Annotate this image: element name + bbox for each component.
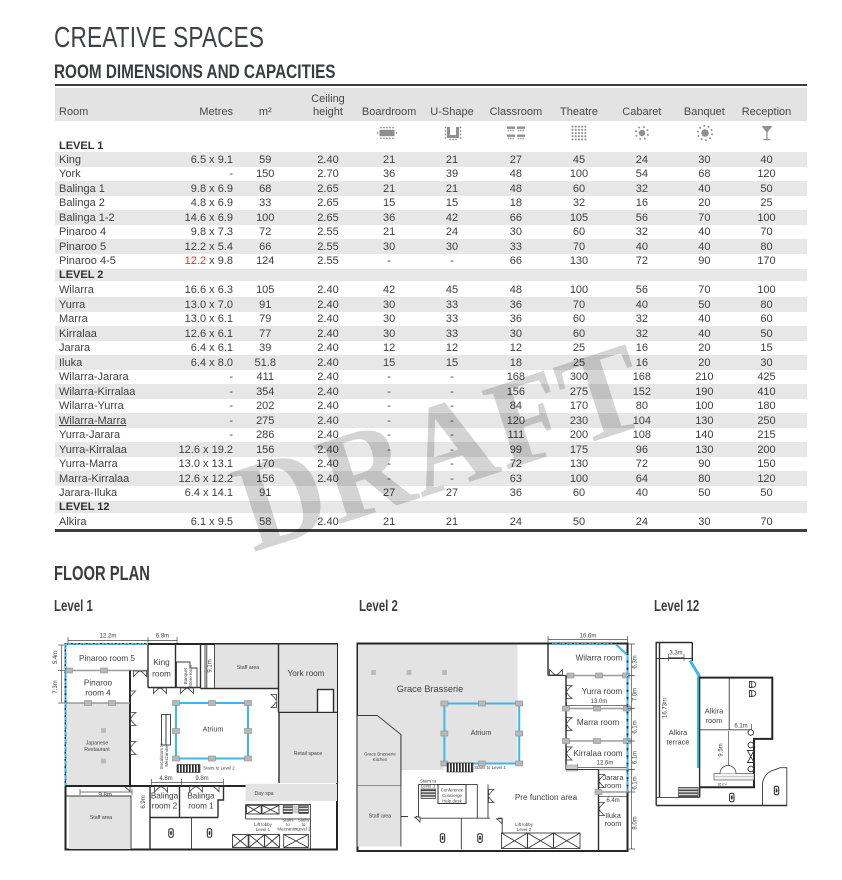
svg-text:Kirralaa room: Kirralaa room bbox=[573, 749, 622, 758]
svg-text:Japanese: Japanese bbox=[86, 741, 109, 747]
svg-text:Balinga: Balinga bbox=[187, 792, 215, 801]
svg-text:Staff area: Staff area bbox=[90, 815, 113, 821]
svg-text:Restaurant: Restaurant bbox=[84, 747, 110, 753]
svg-text:Alkira: Alkira bbox=[669, 728, 688, 737]
svg-text:6.1m: 6.1m bbox=[734, 724, 747, 730]
svg-text:Help desk: Help desk bbox=[442, 798, 462, 803]
svg-text:Pre function area: Pre function area bbox=[515, 793, 578, 802]
svg-text:room: room bbox=[605, 819, 622, 828]
svg-text:3.3m: 3.3m bbox=[669, 651, 682, 657]
svg-text:Pinaroo: Pinaroo bbox=[84, 679, 113, 688]
svg-text:Grace Brasserie: Grace Brasserie bbox=[397, 684, 463, 694]
svg-text:6.1m: 6.1m bbox=[633, 776, 639, 789]
svg-text:9.5m: 9.5m bbox=[719, 743, 725, 756]
svg-text:Mezzanine: Mezzanine bbox=[164, 745, 169, 767]
svg-text:13.0m: 13.0m bbox=[591, 699, 608, 705]
svg-text:Kitchen: Kitchen bbox=[373, 757, 388, 762]
svg-text:9.8m: 9.8m bbox=[195, 776, 208, 782]
svg-text:Grace Brasserie: Grace Brasserie bbox=[364, 752, 396, 757]
svg-text:8.0m: 8.0m bbox=[633, 816, 639, 829]
svg-text:Atrium: Atrium bbox=[471, 728, 492, 737]
svg-text:7.3m: 7.3m bbox=[53, 680, 59, 693]
svg-text:King: King bbox=[153, 658, 170, 667]
svg-text:Yurra room: Yurra room bbox=[582, 687, 623, 696]
svg-text:York room: York room bbox=[287, 669, 324, 678]
svg-text:9.1m: 9.1m bbox=[208, 659, 214, 672]
svg-text:Level 2: Level 2 bbox=[296, 827, 311, 832]
svg-text:12.6m: 12.6m bbox=[597, 761, 614, 767]
svg-text:Stairs to Level 1: Stairs to Level 1 bbox=[474, 765, 506, 770]
svg-text:4.8m: 4.8m bbox=[159, 776, 172, 782]
svg-text:Day spa: Day spa bbox=[254, 791, 273, 797]
svg-text:Store room: Store room bbox=[188, 665, 193, 687]
svg-text:6.4m: 6.4m bbox=[606, 798, 619, 804]
svg-text:room 2: room 2 bbox=[152, 802, 178, 811]
svg-text:Wilarra room: Wilarra room bbox=[576, 654, 623, 663]
svg-text:Retail space: Retail space bbox=[294, 751, 323, 757]
svg-text:6.1m: 6.1m bbox=[633, 720, 639, 733]
svg-text:16.6m: 16.6m bbox=[580, 634, 597, 640]
svg-text:room: room bbox=[152, 670, 171, 679]
svg-text:Staff area: Staff area bbox=[237, 665, 260, 671]
svg-text:Atrium: Atrium bbox=[203, 725, 224, 734]
svg-text:Staff area: Staff area bbox=[369, 814, 392, 820]
svg-text:room: room bbox=[706, 716, 723, 725]
svg-text:6.3m: 6.3m bbox=[633, 655, 639, 668]
svg-text:Conference: Conference bbox=[441, 788, 464, 793]
svg-text:Marra room: Marra room bbox=[577, 718, 619, 727]
svg-text:Concierge: Concierge bbox=[442, 793, 463, 798]
svg-text:16.73m: 16.73m bbox=[663, 698, 669, 718]
svg-text:5.4m: 5.4m bbox=[53, 651, 59, 664]
svg-text:room: room bbox=[605, 781, 622, 790]
svg-text:Alkira: Alkira bbox=[705, 707, 724, 716]
svg-text:Level 2: Level 2 bbox=[517, 827, 532, 832]
svg-text:Pinaroo room 5: Pinaroo room 5 bbox=[79, 654, 135, 663]
svg-text:6.1m: 6.1m bbox=[633, 751, 639, 764]
svg-text:Level 1: Level 1 bbox=[256, 827, 271, 832]
svg-text:16 m²: 16 m² bbox=[717, 783, 727, 787]
svg-text:room 4: room 4 bbox=[85, 689, 111, 698]
svg-text:Stairs to Level 2: Stairs to Level 2 bbox=[203, 766, 235, 771]
svg-text:12.2m: 12.2m bbox=[100, 634, 117, 640]
svg-text:7.0m: 7.0m bbox=[633, 688, 639, 701]
svg-text:Balinga: Balinga bbox=[151, 792, 179, 801]
svg-text:6.9m: 6.9m bbox=[141, 795, 147, 808]
svg-text:room 1: room 1 bbox=[188, 802, 214, 811]
svg-text:6.8m: 6.8m bbox=[156, 634, 169, 640]
svg-text:terrace: terrace bbox=[666, 738, 689, 747]
